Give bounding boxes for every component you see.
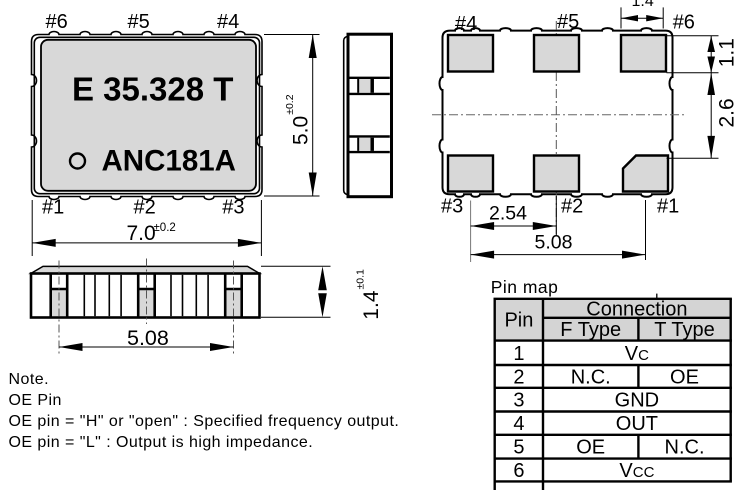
svg-text:2: 2 [513, 366, 524, 388]
svg-text:2.54: 2.54 [489, 203, 527, 225]
svg-text:F Type: F Type [560, 319, 621, 341]
svg-text:5.0±0.2: 5.0±0.2 [284, 94, 313, 145]
svg-text:E 35.328 T: E 35.328 T [72, 71, 233, 108]
svg-text:GND: GND [615, 390, 659, 412]
svg-text:#6: #6 [46, 11, 68, 33]
svg-text:4: 4 [513, 413, 524, 435]
svg-text:#1: #1 [42, 197, 64, 219]
svg-text:3: 3 [513, 390, 524, 412]
svg-text:7.0: 7.0 [127, 222, 156, 245]
svg-text:Pin: Pin [504, 310, 533, 332]
svg-text:#5: #5 [128, 11, 150, 33]
svg-text:Connection: Connection [586, 298, 687, 320]
svg-text:5.08: 5.08 [535, 232, 573, 254]
svg-text:OE: OE [670, 366, 699, 388]
svg-text:ANC181A: ANC181A [102, 145, 236, 178]
svg-text:N.C.: N.C. [665, 437, 705, 459]
svg-text:±0.2: ±0.2 [154, 222, 176, 234]
svg-text:VCC: VCC [619, 460, 654, 482]
svg-text:#2: #2 [561, 196, 583, 218]
svg-text:OUT: OUT [616, 413, 658, 435]
svg-text:#1: #1 [657, 196, 679, 218]
svg-text:1.4±0.1: 1.4±0.1 [354, 269, 383, 320]
svg-text:#3: #3 [222, 197, 244, 219]
svg-text:VC: VC [625, 343, 649, 365]
svg-text:5: 5 [513, 437, 524, 459]
svg-text:Pin map: Pin map [491, 277, 559, 297]
svg-text:#4: #4 [217, 11, 239, 33]
svg-text:#2: #2 [134, 197, 156, 219]
svg-text:T Type: T Type [654, 319, 714, 341]
svg-text:#6: #6 [673, 11, 695, 33]
svg-text:6: 6 [513, 460, 524, 482]
svg-text:1.1: 1.1 [716, 38, 739, 67]
svg-text:1: 1 [513, 343, 524, 365]
svg-text:5.08: 5.08 [127, 326, 169, 350]
svg-text:OE: OE [576, 437, 605, 459]
svg-text:2.6: 2.6 [716, 98, 739, 127]
svg-text:#4: #4 [455, 13, 477, 35]
svg-text:#3: #3 [441, 196, 463, 218]
svg-text:#5: #5 [557, 11, 579, 33]
svg-text:N.C.: N.C. [571, 366, 611, 388]
svg-text:1.4: 1.4 [632, 0, 654, 10]
